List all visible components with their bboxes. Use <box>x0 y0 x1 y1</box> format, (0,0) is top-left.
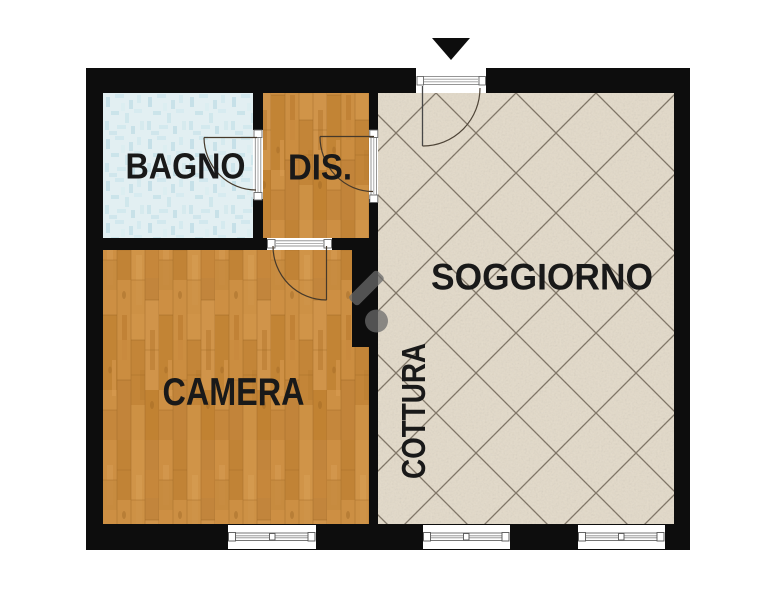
svg-text:BAGNO: BAGNO <box>126 146 246 187</box>
svg-text:CAMERA: CAMERA <box>163 371 305 414</box>
svg-text:COTTURA: COTTURA <box>395 343 432 479</box>
svg-text:DIS.: DIS. <box>288 147 352 188</box>
svg-text:SOGGIORNO: SOGGIORNO <box>431 257 653 298</box>
